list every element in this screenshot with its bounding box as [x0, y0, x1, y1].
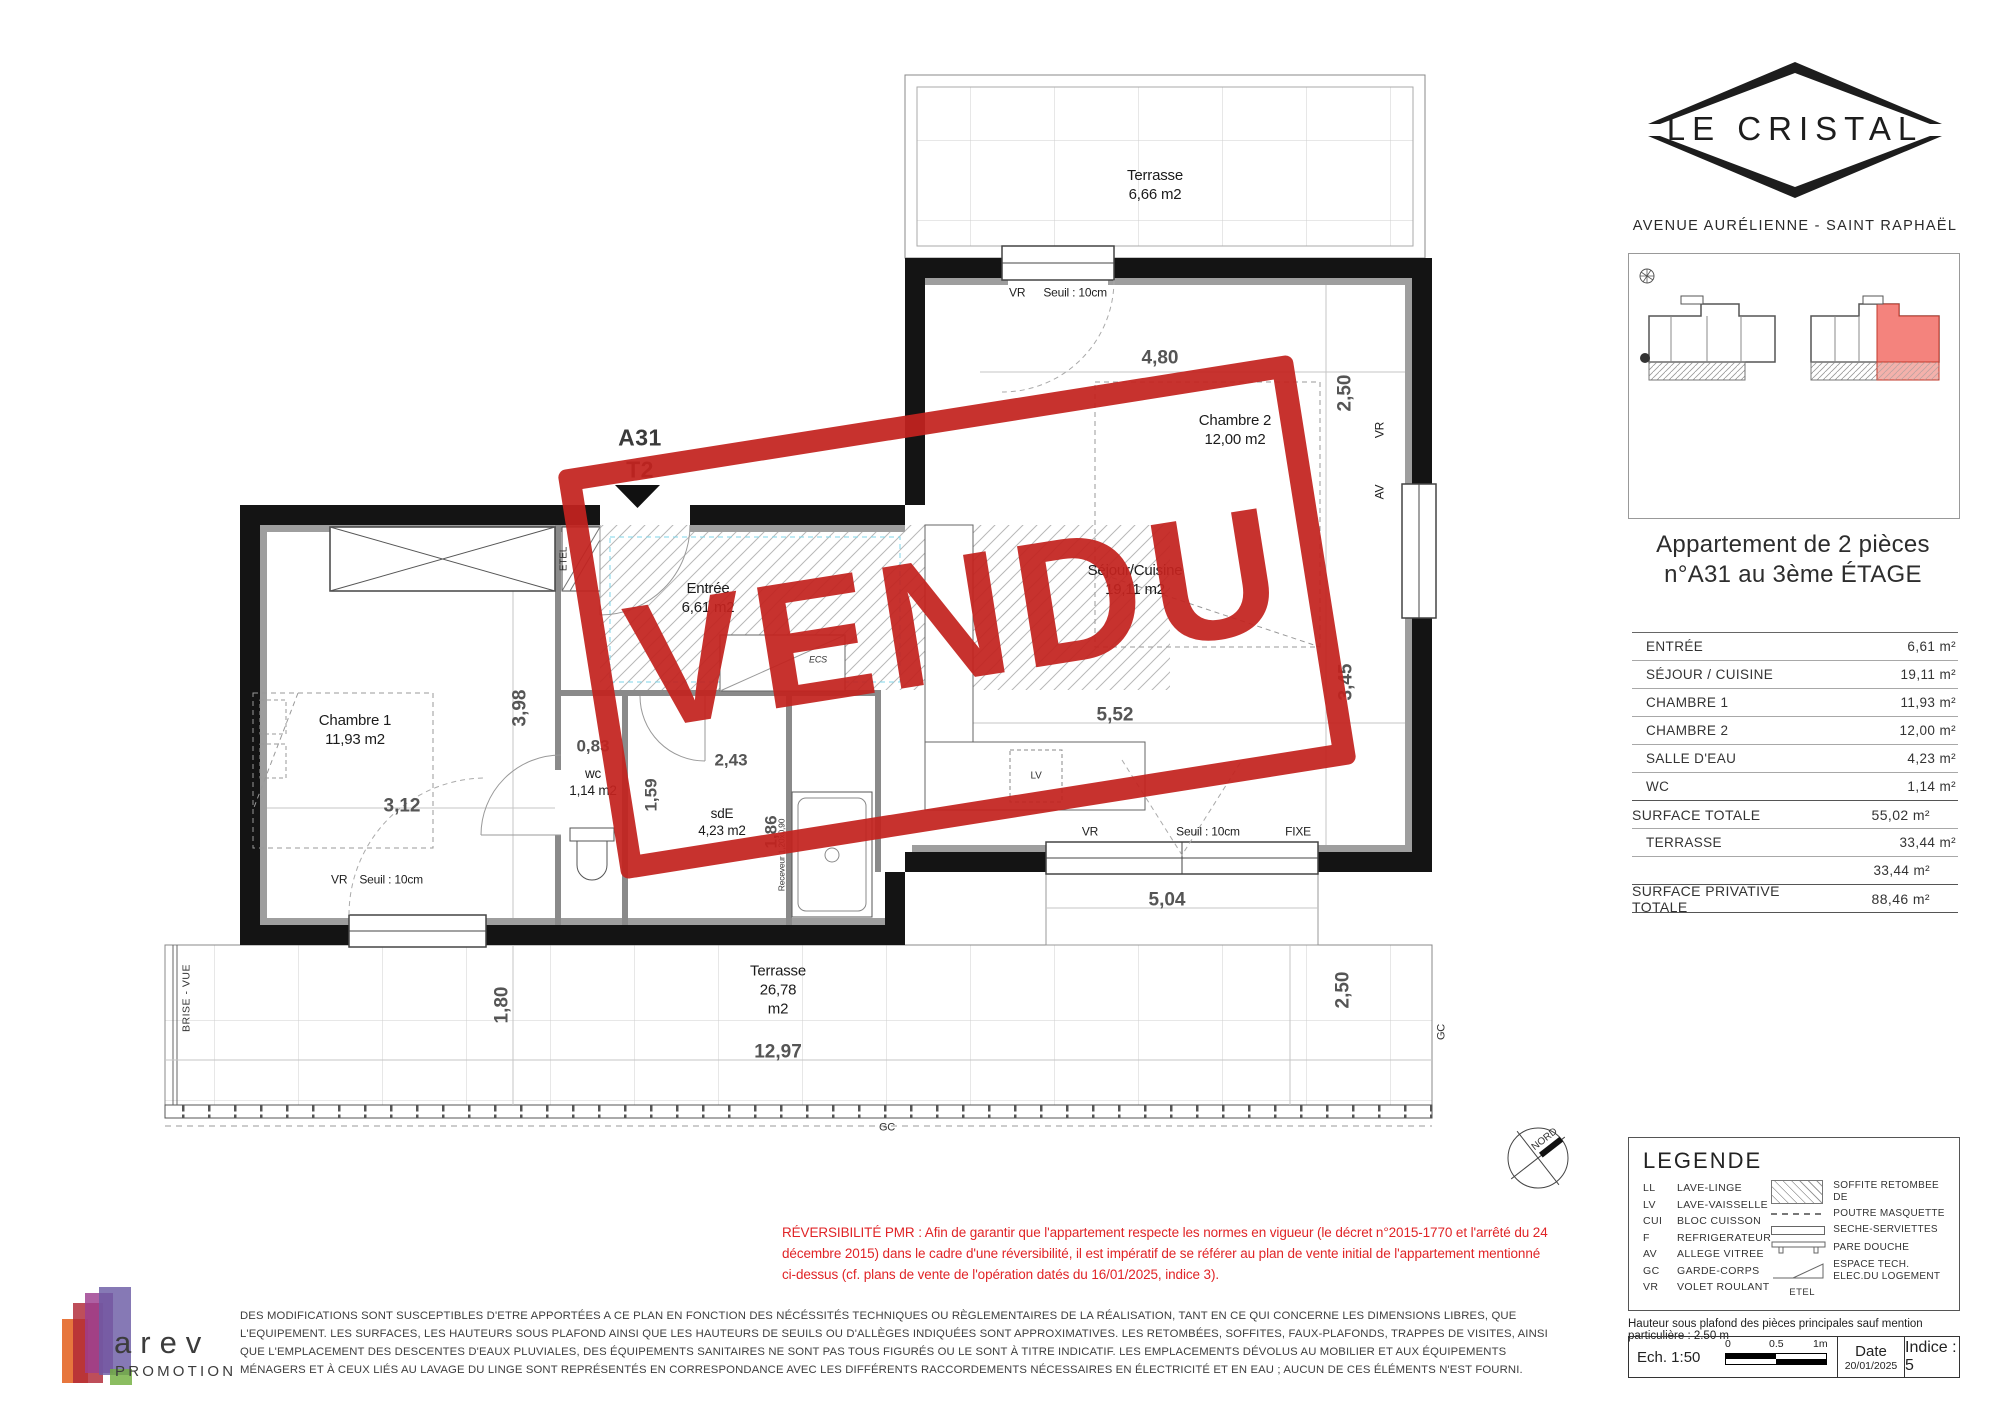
indice-cell: Indice : 5	[1904, 1337, 1959, 1377]
table-row-total: SURFACE PRIVATIVE TOTALE88,46 m²	[1632, 884, 1958, 913]
etel-triangle-icon	[1771, 1260, 1827, 1282]
window-av-right: AV	[1371, 485, 1390, 500]
soffit-hatch-icon	[1771, 1180, 1823, 1204]
terrace-top-area: 6,66 m2	[1127, 185, 1183, 204]
sold-stamp-text: VENDU	[614, 464, 1301, 770]
terrace-top-label: Terrasse 6,66 m2	[1127, 166, 1183, 204]
terrace-bottom-label: Terrasse 26,78 m2	[750, 962, 806, 1019]
dim-terrace-top-width: 5,04	[1149, 891, 1186, 910]
etel-caption: ETEL	[1789, 1287, 1949, 1298]
apartment-title-line1: Appartement de 2 pièces	[1618, 530, 1968, 560]
brise-vue-label: BRISE - VUE	[178, 964, 197, 1032]
terrace-top-name: Terrasse	[1127, 166, 1183, 185]
dim-chambre2-height: 2,50	[1336, 375, 1355, 412]
floor-plan: Terrasse 6,66 m2 VR Seuil : 10cm A31 T2 …	[130, 60, 1460, 1140]
window-fixe-bottom: FIXE	[1285, 823, 1311, 842]
gc-bottom-label: GC	[879, 1119, 895, 1138]
table-row: SÉJOUR / CUISINE19,11 m²	[1632, 660, 1958, 688]
dim-chambre1-width: 3,12	[384, 797, 421, 816]
scale-tick-05: 0.5	[1769, 1338, 1784, 1350]
dim-chambre1-height: 3,98	[511, 690, 530, 727]
window-vr-right: VR	[1371, 422, 1390, 438]
gc-right-label: GC	[1433, 1024, 1452, 1040]
plan-sheet: Terrasse 6,66 m2 VR Seuil : 10cm A31 T2 …	[0, 0, 2000, 1414]
legend-title: LEGENDE	[1629, 1138, 1959, 1180]
table-row: SALLE D'EAU4,23 m²	[1632, 744, 1958, 772]
unit-number: A31	[618, 429, 662, 448]
scale-bar: 0 0.5 1m	[1719, 1337, 1837, 1377]
scale-bar-graphic	[1725, 1353, 1827, 1365]
legend: LEGENDE LLLAVE-LINGE LVLAVE-VAISSELLE CU…	[1628, 1137, 1960, 1311]
publisher-name: arev	[114, 1325, 210, 1361]
towel-dryer-icon	[1771, 1226, 1825, 1235]
window-vr-bottom: VR	[1082, 823, 1098, 842]
legend-symbols: SOFFITE RETOMBEE DE POUTRE MASQUETTE SEC…	[1771, 1180, 1949, 1298]
floor-key-plans	[1629, 254, 1957, 516]
surface-table: ENTRÉE6,61 m² SÉJOUR / CUISINE19,11 m² C…	[1632, 632, 1958, 913]
project-name: LE CRISTAL	[1630, 110, 1960, 148]
window-seuil-bottom: Seuil : 10cm	[1176, 823, 1240, 842]
project-address: AVENUE AURÉLIENNE - SAINT RAPHAËL	[1615, 218, 1975, 234]
publisher-logo: arev PROMOTION	[62, 1283, 252, 1395]
date-cell: Date 20/01/2025	[1837, 1337, 1904, 1377]
north-compass: NORD	[1498, 1118, 1578, 1203]
dim-terrace-right: 2,50	[1334, 972, 1353, 1009]
location-thumbnails	[1628, 253, 1960, 519]
dim-chambre2-width: 4,80	[1142, 349, 1179, 368]
table-row: TERRASSE33,44 m²	[1632, 828, 1958, 856]
masked-beam-icon	[1771, 1213, 1821, 1215]
table-row: ENTRÉE6,61 m²	[1632, 633, 1958, 660]
dim-terrace-height: 1,80	[493, 987, 512, 1024]
scale-tick-1m: 1m	[1813, 1338, 1828, 1350]
apartment-title: Appartement de 2 pièces n°A31 au 3ème ÉT…	[1618, 530, 1968, 590]
scale-label: Ech. 1:50	[1629, 1337, 1719, 1377]
pmr-note: RÉVERSIBILITÉ PMR : Afin de garantir que…	[782, 1222, 1548, 1285]
table-row: CHAMBRE 111,93 m²	[1632, 688, 1958, 716]
window-label-chambre2: VR Seuil : 10cm	[1009, 284, 1107, 303]
shower-screen-icon	[1771, 1240, 1827, 1255]
scale-tick-0: 0	[1725, 1338, 1731, 1350]
table-row: 33,44 m²	[1632, 856, 1958, 884]
legend-abbreviations: LLLAVE-LINGE LVLAVE-VAISSELLE CUIBLOC CU…	[1643, 1180, 1771, 1298]
table-row-total: SURFACE TOTALE55,02 m²	[1632, 800, 1958, 828]
table-row: WC1,14 m²	[1632, 772, 1958, 800]
table-row: CHAMBRE 212,00 m²	[1632, 716, 1958, 744]
project-logo: LE CRISTAL	[1630, 46, 1960, 214]
apartment-title-line2: n°A31 au 3ème ÉTAGE	[1618, 560, 1968, 590]
disclaimer: DES MODIFICATIONS SONT SUSCEPTIBLES D'ET…	[240, 1307, 1548, 1379]
window-label-chambre1: VR Seuil : 10cm	[331, 871, 423, 890]
room-label-chambre1: Chambre 1 11,93 m2	[319, 711, 391, 749]
publisher-subtitle: PROMOTION	[115, 1363, 236, 1380]
dim-terrace-width: 12,97	[754, 1043, 802, 1062]
title-block: Ech. 1:50 0 0.5 1m Date 20/01/2025 Indic…	[1628, 1336, 1960, 1378]
